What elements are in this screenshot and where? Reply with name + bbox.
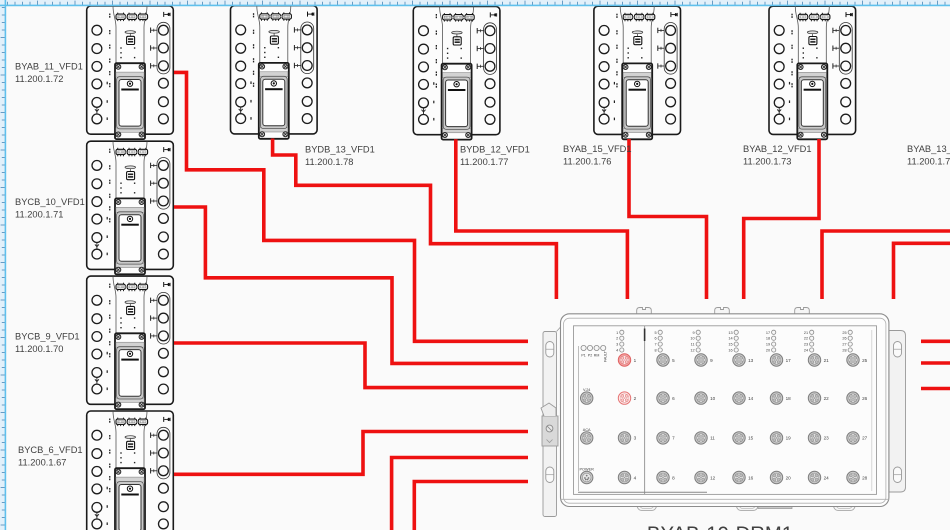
svg-text:18: 18: [766, 337, 770, 341]
svg-text:BYDB_12_VFD1: BYDB_12_VFD1: [460, 145, 530, 155]
svg-text:8: 8: [672, 475, 675, 480]
svg-text:28: 28: [842, 349, 846, 353]
svg-text:28: 28: [862, 475, 868, 480]
svg-text:P1: P1: [581, 354, 585, 358]
svg-text:12: 12: [690, 349, 694, 353]
svg-text:6: 6: [654, 337, 656, 341]
svg-text:15: 15: [728, 343, 732, 347]
svg-text:1: 1: [616, 331, 618, 335]
svg-text:12: 12: [710, 475, 716, 480]
svg-text:11.200.1.78: 11.200.1.78: [305, 157, 353, 167]
svg-text:21: 21: [804, 331, 808, 335]
svg-text:11: 11: [710, 436, 715, 441]
svg-text:11: 11: [691, 343, 695, 347]
svg-text:20: 20: [766, 349, 770, 353]
svg-text:17: 17: [766, 331, 770, 335]
svg-text:23: 23: [824, 436, 830, 441]
svg-text:FAULT: FAULT: [604, 350, 608, 362]
svg-text:BYCB_9_VFD1: BYCB_9_VFD1: [15, 332, 80, 342]
svg-text:24: 24: [804, 349, 808, 353]
svg-text:25: 25: [862, 358, 868, 363]
svg-text:19: 19: [766, 343, 770, 347]
svg-text:17: 17: [786, 358, 792, 363]
svg-text:16: 16: [748, 475, 754, 480]
svg-text:BYAB_11_VFD1: BYAB_11_VFD1: [15, 61, 83, 71]
svg-text:22: 22: [804, 337, 808, 341]
svg-text:BYCB_6_VFD1: BYCB_6_VFD1: [18, 445, 83, 455]
svg-text:2: 2: [616, 337, 618, 341]
svg-text:26: 26: [842, 337, 846, 341]
svg-text:5: 5: [672, 358, 675, 363]
svg-text:11.200.1.71: 11.200.1.71: [15, 210, 63, 220]
svg-text:6: 6: [672, 396, 675, 401]
svg-text:21: 21: [824, 358, 830, 363]
svg-text:1: 1: [634, 358, 637, 363]
svg-text:BYDB_13_VFD1: BYDB_13_VFD1: [305, 145, 375, 155]
svg-text:11.200.1.73: 11.200.1.73: [743, 157, 791, 167]
svg-text:19: 19: [786, 436, 792, 441]
svg-text:11.200.1.67: 11.200.1.67: [18, 458, 66, 468]
svg-text:18: 18: [786, 396, 792, 401]
svg-text:14: 14: [748, 396, 754, 401]
svg-text:2: 2: [634, 396, 637, 401]
svg-text:5: 5: [654, 331, 656, 335]
svg-text:10: 10: [710, 396, 716, 401]
svg-text:13: 13: [748, 358, 754, 363]
svg-text:3: 3: [634, 436, 637, 441]
svg-text:10: 10: [690, 337, 694, 341]
svg-text:27: 27: [862, 436, 868, 441]
svg-text:11.200.1.72: 11.200.1.72: [15, 74, 63, 84]
svg-text:POWER: POWER: [580, 468, 595, 472]
svg-text:22: 22: [824, 396, 830, 401]
svg-text:25: 25: [842, 331, 846, 335]
svg-text:11.200.1.76: 11.200.1.76: [563, 157, 611, 167]
svg-text:27: 27: [842, 343, 846, 347]
svg-text:7: 7: [654, 343, 656, 347]
svg-text:20: 20: [786, 475, 792, 480]
svg-text:11.200.1.77: 11.200.1.77: [460, 157, 508, 167]
svg-text:15: 15: [748, 436, 754, 441]
svg-text:11.200.1.70: 11.200.1.70: [15, 344, 63, 354]
svg-text:9: 9: [710, 358, 713, 363]
svg-text:BYAB_13_VFD1: BYAB_13_VFD1: [907, 144, 950, 154]
svg-text:26: 26: [862, 396, 868, 401]
svg-text:BYAB_12_VFD1: BYAB_12_VFD1: [743, 144, 812, 154]
svg-text:4: 4: [616, 349, 618, 353]
svg-text:P2: P2: [588, 354, 592, 358]
svg-text:9: 9: [692, 331, 694, 335]
svg-text:8: 8: [654, 349, 656, 353]
svg-text:RM: RM: [594, 354, 600, 358]
svg-text:BYAB_15_VFD1: BYAB_15_VFD1: [563, 144, 632, 154]
svg-text:7: 7: [672, 436, 675, 441]
svg-text:14: 14: [728, 337, 732, 341]
svg-text:BYAB-10-DRM1: BYAB-10-DRM1: [647, 523, 793, 530]
svg-text:13: 13: [728, 331, 732, 335]
svg-text:4: 4: [634, 475, 637, 480]
svg-text:V.24: V.24: [583, 388, 590, 392]
svg-text:3: 3: [616, 343, 618, 347]
svg-text:16: 16: [728, 349, 732, 353]
svg-text:11.200.1.75: 11.200.1.75: [907, 157, 950, 167]
svg-text:24: 24: [824, 475, 830, 480]
svg-text:23: 23: [804, 343, 808, 347]
svg-text:BYCB_10_VFD1: BYCB_10_VFD1: [15, 197, 85, 207]
svg-text:ACA: ACA: [583, 428, 591, 432]
